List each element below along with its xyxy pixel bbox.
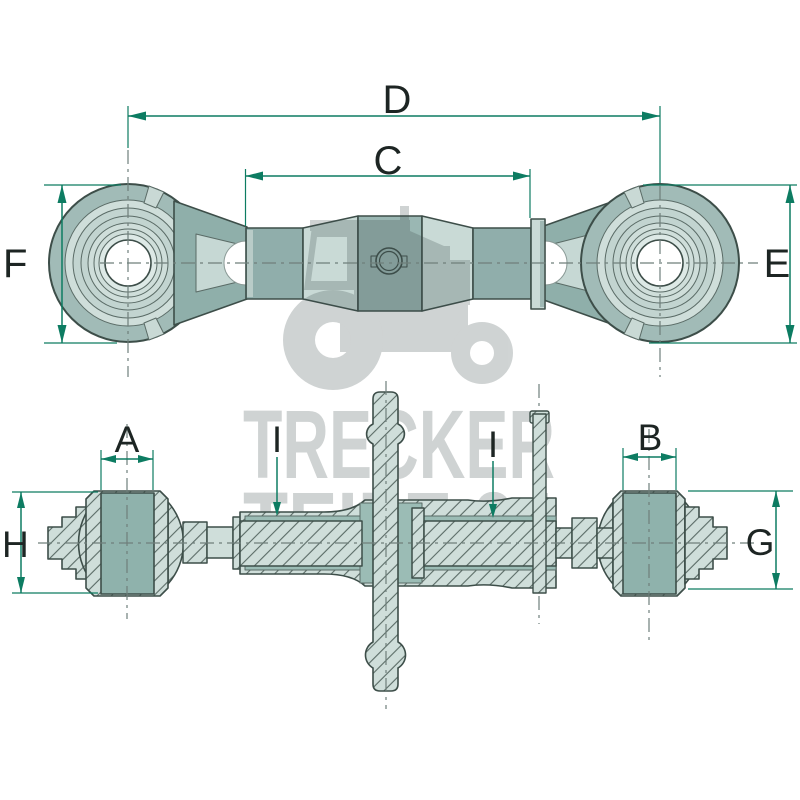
tractor-exhaust bbox=[400, 206, 409, 222]
dimension-i-left-label: I bbox=[272, 419, 282, 460]
dimension-h-label: H bbox=[2, 524, 29, 565]
dimension-f-label: F bbox=[3, 242, 27, 286]
dimension-c-label: C bbox=[374, 139, 403, 183]
dimension-e-label: E bbox=[764, 242, 791, 286]
collar-plate-shade bbox=[540, 221, 544, 307]
lock-pin bbox=[530, 411, 549, 593]
dimension-a-label: A bbox=[115, 419, 140, 460]
dimension-g-label: G bbox=[746, 522, 775, 563]
dimension-i-right-label: I bbox=[488, 424, 498, 465]
dimension-b-label: B bbox=[638, 417, 663, 458]
technical-drawing-page: TRECKER TEILE 24 bbox=[0, 0, 800, 800]
technical-drawing-canvas: TRECKER TEILE 24 bbox=[0, 0, 800, 800]
dimension-d-label: D bbox=[383, 78, 412, 122]
